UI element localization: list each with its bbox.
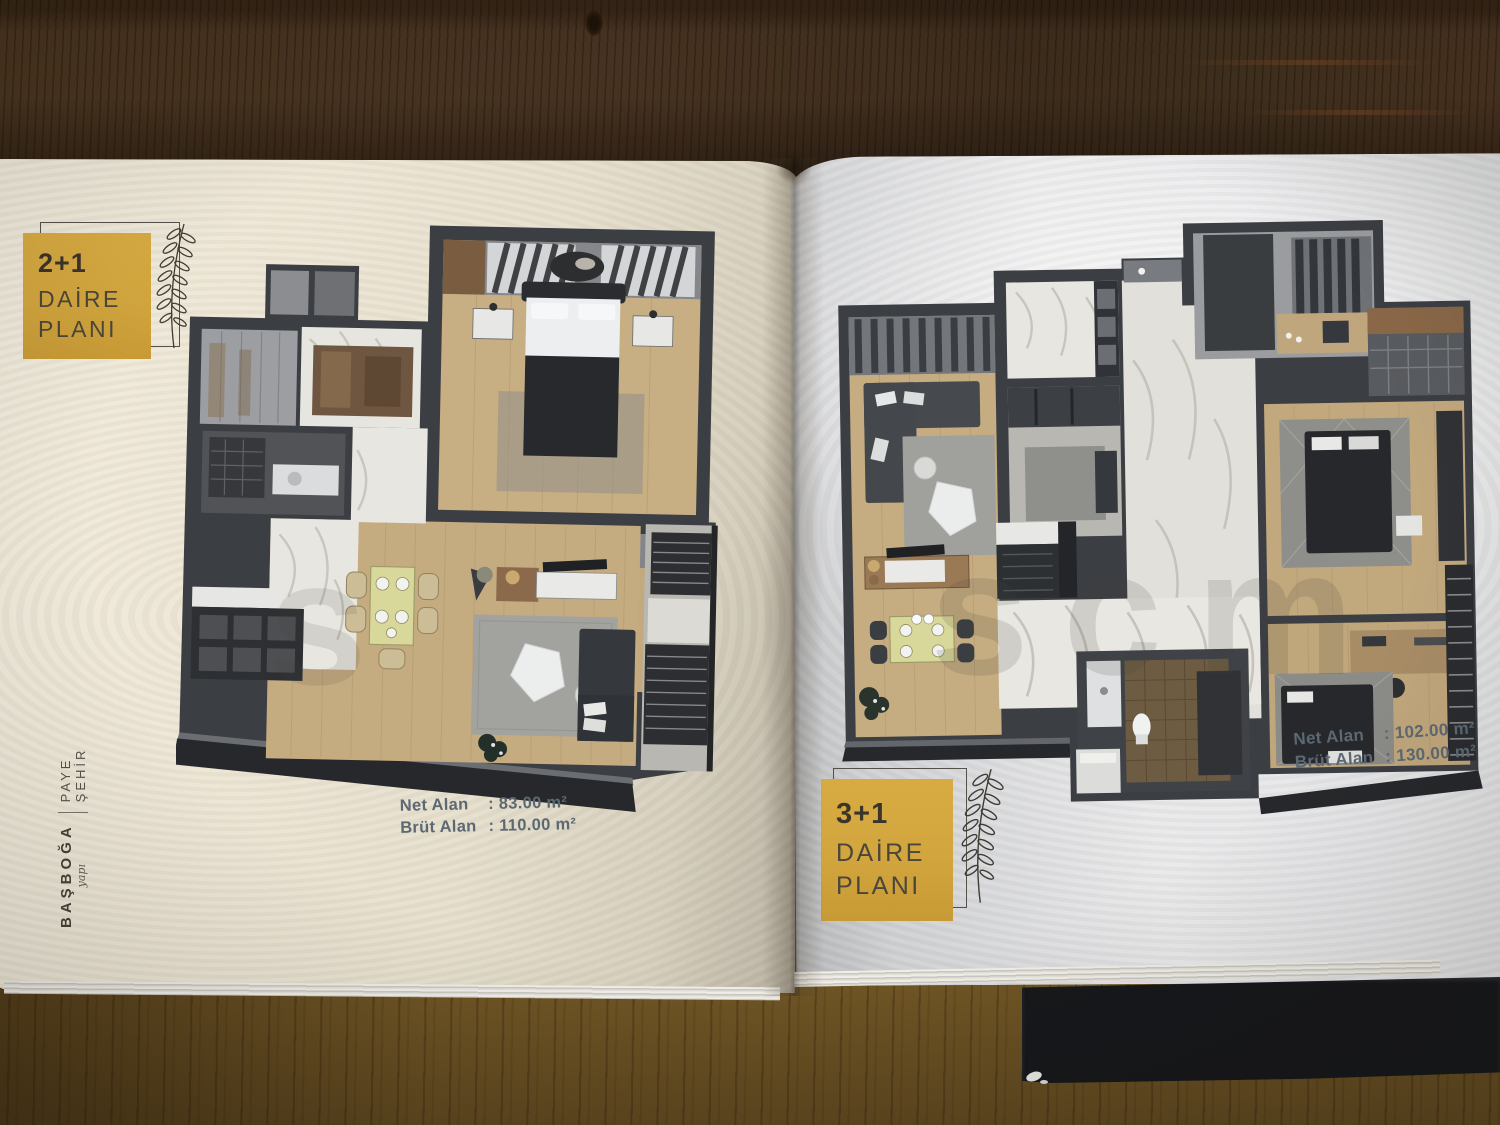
badge-word2: PLANI xyxy=(38,315,151,345)
nightstand xyxy=(1396,515,1422,535)
brand-logo: BAŞBOĞA yapı xyxy=(59,823,87,928)
table-wood-top xyxy=(0,0,1500,176)
photo-of-floorplan-brochure: { "left_page": { "badge": { "units": "2+… xyxy=(0,0,1500,1125)
plan3-closet-room xyxy=(1367,307,1465,397)
bed-throw xyxy=(523,356,619,458)
plan2-bathroom xyxy=(201,431,346,516)
paper-speck xyxy=(1040,1080,1048,1084)
wardrobe xyxy=(1203,234,1275,351)
badge-word1: DAİRE xyxy=(38,285,151,315)
nightstand xyxy=(633,316,674,347)
kitchen-counter-top xyxy=(192,587,278,609)
plan3-bathroom xyxy=(1074,648,1250,793)
badge-word1: DAİRE xyxy=(836,837,953,870)
net-area-value: : 102.00 m² xyxy=(1383,718,1475,744)
area-info-2plus1: Net Alan : 83.00 m² Brüt Alan : 110.00 m… xyxy=(400,793,577,838)
plan3-middle-bedroom xyxy=(1008,386,1123,538)
gross-area-value: : 110.00 m² xyxy=(488,815,576,836)
plan-type-badge-3plus1: 3+1 DAİRE PLANI xyxy=(821,779,953,921)
wood-grain-streak xyxy=(1240,110,1480,115)
nightstand xyxy=(473,308,514,339)
wood-grain-streak xyxy=(1180,60,1440,65)
wardrobe xyxy=(1436,411,1465,561)
badge-units-label: 3+1 xyxy=(836,798,953,831)
gutter-top-shadow xyxy=(776,150,812,186)
plan-type-badge-2plus1: 2+1 DAİRE PLANI xyxy=(23,233,151,359)
tv-cabinet xyxy=(496,567,539,602)
desk xyxy=(1350,629,1461,675)
badge-word2: PLANI xyxy=(836,870,953,903)
plan3-top-right-bedroom xyxy=(1193,230,1375,359)
net-area-value: : 83.00 m² xyxy=(488,793,576,814)
wood-knot xyxy=(585,10,603,36)
kitchen-counter-top xyxy=(996,522,1058,545)
brand-name: BAŞBOĞA xyxy=(59,823,74,928)
leaf-branch-icon xyxy=(948,764,1004,910)
bath-bench xyxy=(1197,671,1243,776)
brand-block: BAŞBOĞA yapı PAYE ŞEHİR xyxy=(50,698,96,928)
net-area-label: Net Alan xyxy=(400,795,477,816)
gross-area-label: Brüt Alan xyxy=(400,817,477,838)
dresser xyxy=(1095,451,1118,513)
plan3-entry-hall xyxy=(1006,281,1120,379)
bathroom-vanity xyxy=(272,464,339,495)
black-folder xyxy=(1022,977,1500,1083)
brand-script: yapı xyxy=(76,864,87,887)
net-area-label: Net Alan xyxy=(1293,725,1373,750)
plan2-balcony xyxy=(641,524,718,771)
plan3-right-bedroom xyxy=(1264,401,1468,616)
plan2-master-bedroom xyxy=(438,240,702,515)
leaf-branch-icon xyxy=(144,222,196,352)
tv-console xyxy=(536,572,617,600)
badge-units-label: 2+1 xyxy=(38,248,151,279)
rug xyxy=(1025,446,1106,521)
floor-plan-2plus1-render xyxy=(176,222,724,814)
dining-table xyxy=(890,616,955,663)
plan3-living-room xyxy=(848,315,1001,737)
side-table xyxy=(914,457,936,479)
brand-project-name: PAYE ŞEHİR xyxy=(58,698,88,802)
brand-divider xyxy=(58,812,88,813)
